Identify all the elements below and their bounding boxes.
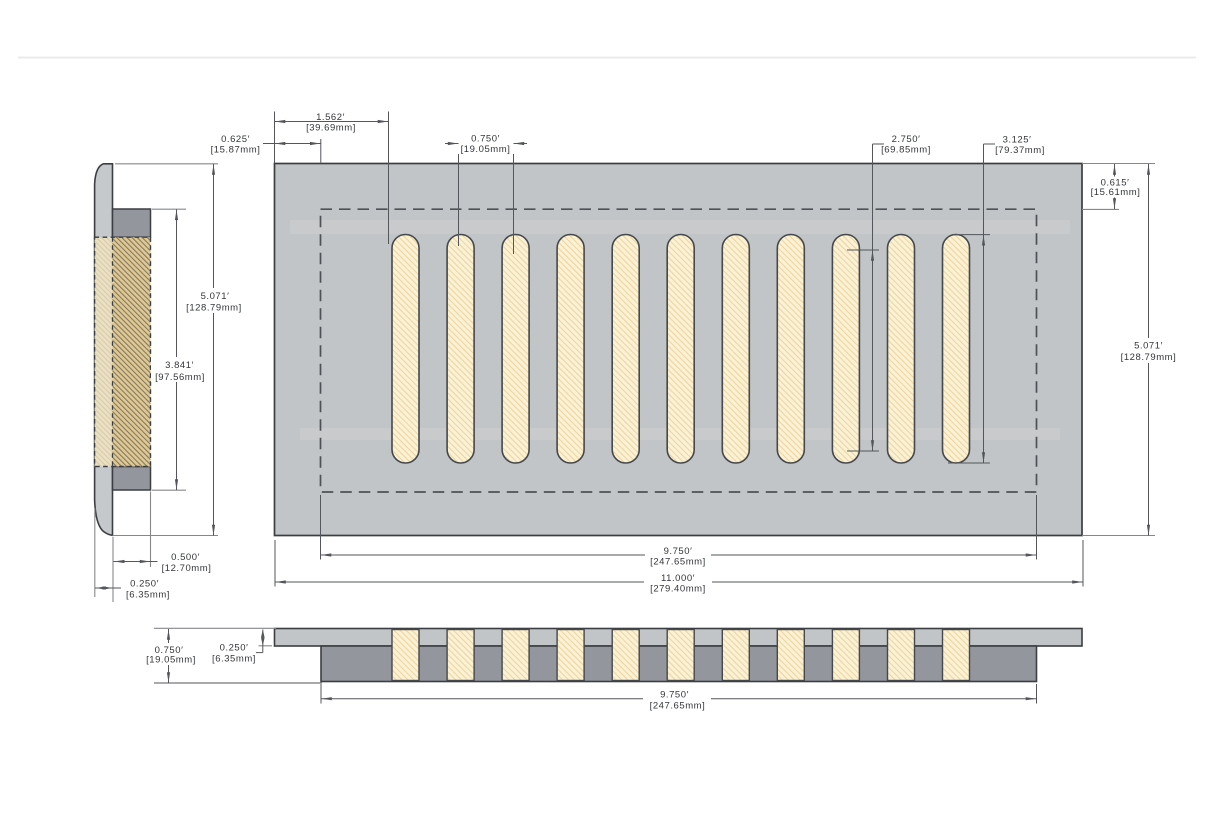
svg-text:2.750′: 2.750′ (892, 134, 921, 145)
svg-text:0.250′: 0.250′ (220, 643, 249, 654)
svg-text:5.071′: 5.071′ (1134, 341, 1163, 352)
svg-text:11.000′: 11.000′ (661, 573, 695, 584)
svg-text:9.750′: 9.750′ (660, 690, 689, 701)
svg-text:[97.56mm]: [97.56mm] (155, 372, 205, 383)
svg-text:9.750′: 9.750′ (664, 546, 693, 557)
svg-text:[12.70mm]: [12.70mm] (162, 563, 212, 574)
svg-text:[247.65mm]: [247.65mm] (650, 557, 706, 568)
svg-text:[279.40mm]: [279.40mm] (650, 584, 706, 595)
svg-text:[15.61mm]: [15.61mm] (1091, 187, 1141, 198)
svg-text:3.841′: 3.841′ (165, 360, 194, 371)
svg-text:[19.05mm]: [19.05mm] (146, 655, 196, 666)
svg-text:[39.69mm]: [39.69mm] (306, 123, 356, 134)
svg-text:5.071′: 5.071′ (201, 291, 230, 302)
svg-text:[247.65mm]: [247.65mm] (650, 701, 706, 712)
svg-text:0.500′: 0.500′ (171, 552, 200, 563)
svg-text:[19.05mm]: [19.05mm] (461, 144, 511, 155)
svg-text:[15.87mm]: [15.87mm] (211, 145, 261, 156)
svg-text:0.750′: 0.750′ (471, 134, 500, 145)
svg-text:[6.35mm]: [6.35mm] (212, 654, 256, 665)
svg-text:[69.85mm]: [69.85mm] (881, 145, 931, 156)
svg-text:[79.37mm]: [79.37mm] (995, 145, 1045, 156)
svg-text:0.625′: 0.625′ (221, 134, 250, 145)
svg-text:[128.79mm]: [128.79mm] (1121, 352, 1177, 363)
svg-text:1.562′: 1.562′ (316, 112, 345, 123)
svg-text:[6.35mm]: [6.35mm] (126, 590, 170, 601)
svg-text:0.250′: 0.250′ (130, 579, 159, 590)
svg-text:[128.79mm]: [128.79mm] (186, 303, 242, 314)
svg-text:3.125′: 3.125′ (1003, 135, 1032, 146)
